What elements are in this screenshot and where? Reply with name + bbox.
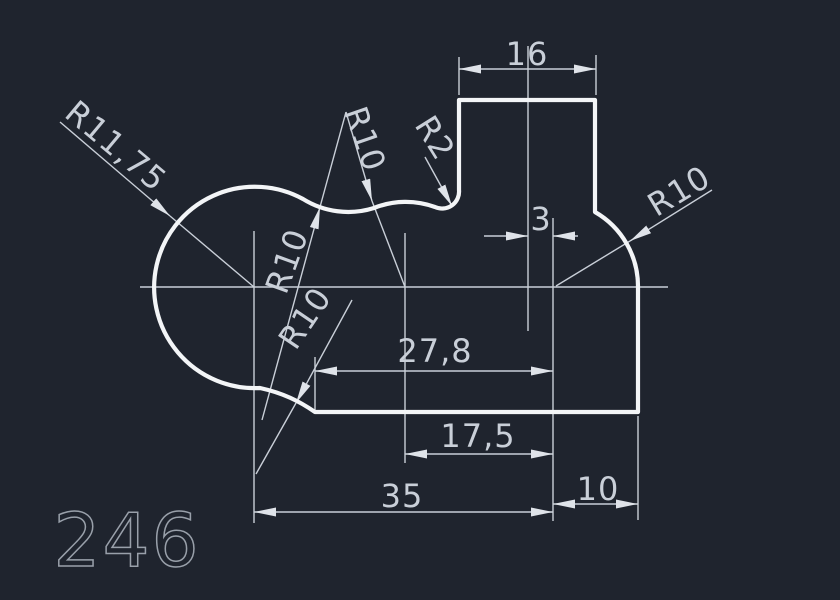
- leader-r2: [425, 157, 452, 206]
- radial-label-r10-hump: R10: [336, 102, 393, 177]
- part-outline: [154, 100, 638, 412]
- dim-label-35: 35: [381, 477, 424, 515]
- dim-label-27-8: 27,8: [397, 332, 472, 370]
- radial-label-r2: R2: [407, 109, 463, 167]
- leader-r10-fillet-lower: [256, 403, 296, 474]
- sheet-number: 246: [53, 498, 200, 584]
- leader-r10-hump-inner: [372, 201, 405, 287]
- radial-label-r10-body: R10: [641, 158, 717, 225]
- dim-label-10: 10: [577, 470, 620, 508]
- cad-canvas[interactable]: 16 3 27,8 17,5 35 10 R11,75 R10 R10 R10 …: [0, 0, 840, 600]
- radial-label-r11-75: R11,75: [58, 93, 174, 199]
- dim-label-3: 3: [530, 200, 551, 238]
- leader-r10-body-inner: [556, 241, 630, 286]
- leader-r11-75-inner: [170, 216, 254, 287]
- cad-drawing: 16 3 27,8 17,5 35 10 R11,75 R10 R10 R10 …: [0, 0, 840, 600]
- dim-label-17-5: 17,5: [440, 417, 515, 455]
- dim-label-16: 16: [506, 35, 549, 73]
